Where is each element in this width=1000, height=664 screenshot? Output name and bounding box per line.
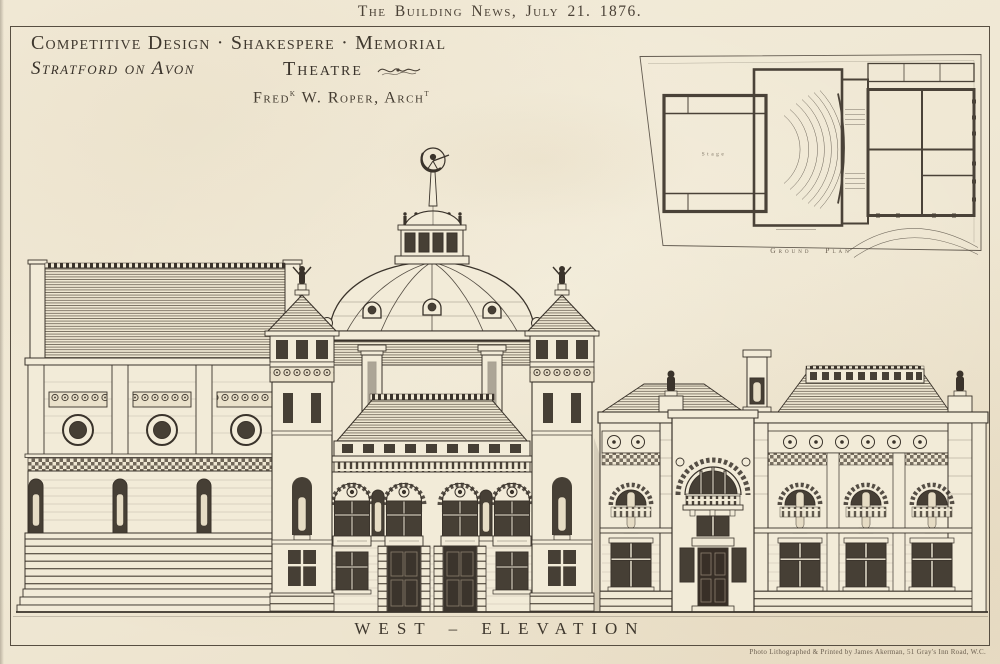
flourish-ornament [376,62,422,80]
title-line: Competitive Design · Shakespere · Memori… [31,32,501,55]
west-elevation-caption: WEST – ELEVATION [11,619,989,639]
plate-frame: Competitive Design · Shakespere · Memori… [10,26,990,646]
plan-stage-label: Stage [702,152,727,158]
architect-line: Fredk W. Roper, Archt [253,88,430,107]
ground-plan-inset: Stage [626,39,996,279]
ground-plan-drawing: Stage [626,39,996,279]
printer-credit: Photo Lithographed & Printed by James Ak… [749,648,986,656]
title-building: Theatre [283,58,363,81]
plan-library-block [868,64,976,218]
title-block: Competitive Design · Shakespere · Memori… [31,32,501,55]
ground-plan-label: Ground Plan [626,246,996,255]
lithograph-plate: The Building News, July 21. 1876. Compet… [0,0,1000,664]
title-place: Stratford on Avon [31,58,195,80]
plan-stair-hall [842,80,868,224]
publication-header: The Building News, July 21. 1876. [358,3,642,21]
scan-edge-shading [0,0,4,664]
